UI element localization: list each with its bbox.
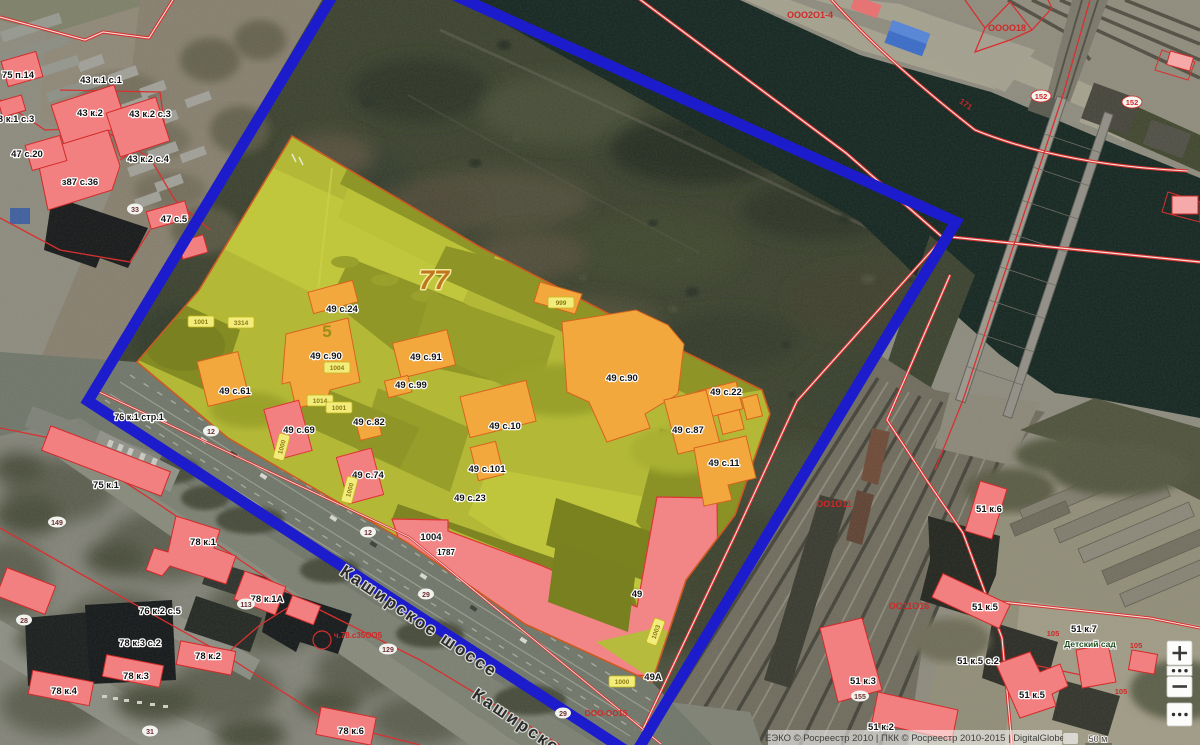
svg-text:ООО-ОО15: ООО-ОО15 bbox=[585, 709, 628, 718]
svg-text:49 с.69: 49 с.69 bbox=[283, 425, 315, 436]
svg-text:49 с.10: 49 с.10 bbox=[489, 421, 521, 432]
svg-text:1787: 1787 bbox=[437, 548, 455, 557]
svg-text:ОООО18: ОООО18 bbox=[988, 23, 1026, 33]
svg-text:1000: 1000 bbox=[615, 679, 630, 686]
svg-text:78 к.6: 78 к.6 bbox=[338, 726, 364, 737]
svg-text:78 к.1А: 78 к.1А bbox=[251, 594, 284, 605]
svg-text:49 с.91: 49 с.91 bbox=[410, 352, 442, 363]
svg-text:49: 49 bbox=[632, 589, 643, 600]
svg-text:76 к.2 с.5: 76 к.2 с.5 bbox=[139, 606, 181, 617]
svg-text:ОО1О11: ОО1О11 bbox=[816, 499, 852, 509]
svg-text:51 к.5: 51 к.5 bbox=[1019, 690, 1046, 701]
svg-text:51 к.6: 51 к.6 bbox=[976, 504, 1002, 515]
svg-text:8 к.1 с.3: 8 к.1 с.3 bbox=[0, 114, 34, 125]
svg-text:47 с.20: 47 с.20 bbox=[11, 149, 43, 160]
svg-text:43 к.2 с.3: 43 к.2 с.3 bbox=[129, 109, 171, 120]
svg-text:51 к.3: 51 к.3 bbox=[850, 676, 876, 687]
svg-text:152: 152 bbox=[1035, 92, 1048, 101]
svg-text:49 с.87: 49 с.87 bbox=[672, 425, 704, 436]
svg-text:12: 12 bbox=[364, 530, 372, 537]
svg-text:105: 105 bbox=[1115, 687, 1128, 696]
svg-text:155: 155 bbox=[854, 694, 866, 701]
svg-text:29: 29 bbox=[559, 711, 567, 718]
svg-text:999: 999 bbox=[556, 300, 567, 307]
svg-text:49 с.90: 49 с.90 bbox=[606, 373, 638, 384]
svg-text:з87 с.36: з87 с.36 bbox=[62, 177, 98, 188]
svg-text:49 с.99: 49 с.99 bbox=[395, 380, 427, 391]
svg-text:75 п.14: 75 п.14 bbox=[2, 70, 35, 81]
svg-text:105: 105 bbox=[1130, 641, 1143, 650]
svg-text:49 с.61: 49 с.61 bbox=[219, 386, 251, 397]
svg-text:33: 33 bbox=[131, 207, 139, 214]
svg-text:49 с.24: 49 с.24 bbox=[326, 304, 358, 315]
svg-text:49 с.23: 49 с.23 bbox=[454, 493, 486, 504]
svg-text:49А: 49А bbox=[644, 672, 662, 683]
svg-text:ОО11О16: ОО11О16 bbox=[889, 601, 930, 611]
svg-text:47 с.5: 47 с.5 bbox=[161, 214, 188, 225]
svg-text:43 к.1 с.1: 43 к.1 с.1 bbox=[80, 75, 122, 86]
svg-text:51 к.5: 51 к.5 bbox=[972, 602, 999, 613]
svg-text:Детский сад: Детский сад bbox=[1064, 639, 1116, 649]
svg-text:1014: 1014 bbox=[313, 398, 328, 405]
svg-text:152: 152 bbox=[1126, 98, 1139, 107]
svg-text:ЕЭКО © Росреестр 2010 | ПКК ©: ЕЭКО © Росреестр 2010 | ПКК © Росреестр … bbox=[765, 733, 1065, 744]
svg-text:12: 12 bbox=[207, 429, 215, 436]
svg-text:28: 28 bbox=[20, 618, 28, 625]
svg-text:43 к.2: 43 к.2 bbox=[77, 108, 103, 119]
svg-text:78 к.2: 78 к.2 bbox=[195, 651, 221, 662]
svg-text:49 с.82: 49 с.82 bbox=[353, 417, 385, 428]
svg-text:149: 149 bbox=[51, 520, 63, 527]
svg-text:113: 113 bbox=[240, 602, 251, 609]
svg-text:105: 105 bbox=[1047, 629, 1060, 638]
svg-text:49 с.101: 49 с.101 bbox=[469, 464, 507, 475]
svg-text:31: 31 bbox=[146, 729, 154, 736]
svg-text:49 с.90: 49 с.90 bbox=[310, 351, 342, 362]
svg-text:49 с.22: 49 с.22 bbox=[710, 387, 742, 398]
svg-text:129: 129 bbox=[382, 647, 394, 654]
svg-text:77: 77 bbox=[419, 265, 451, 295]
svg-text:49 с.11: 49 с.11 bbox=[708, 458, 740, 469]
svg-text:51 к.5 с.2: 51 к.5 с.2 bbox=[957, 656, 999, 667]
svg-text:75 к.1: 75 к.1 bbox=[93, 480, 120, 491]
svg-text:78 к.1: 78 к.1 bbox=[190, 537, 217, 548]
svg-text:29: 29 bbox=[422, 592, 430, 599]
svg-text:3314: 3314 bbox=[234, 320, 249, 327]
svg-text:1004: 1004 bbox=[330, 365, 345, 372]
svg-text:5: 5 bbox=[322, 322, 331, 341]
svg-text:51 к.7: 51 к.7 bbox=[1071, 624, 1097, 635]
svg-text:1004: 1004 bbox=[420, 532, 442, 543]
svg-text:ООО2О1-4: ООО2О1-4 bbox=[787, 10, 833, 20]
svg-text:ч.78.с35ОО5: ч.78.с35ОО5 bbox=[334, 631, 383, 640]
svg-text:43 к.2 с.4: 43 к.2 с.4 bbox=[127, 154, 169, 165]
svg-text:76 к.1 стр.1: 76 к.1 стр.1 bbox=[114, 412, 163, 422]
svg-text:1001: 1001 bbox=[332, 405, 347, 412]
svg-text:78 к.3: 78 к.3 bbox=[123, 671, 149, 682]
svg-text:78 к.4: 78 к.4 bbox=[51, 686, 78, 697]
svg-text:1001: 1001 bbox=[194, 319, 209, 326]
svg-text:50 м: 50 м bbox=[1089, 734, 1108, 744]
svg-text:78 к.3 с.2: 78 к.3 с.2 bbox=[119, 638, 161, 649]
